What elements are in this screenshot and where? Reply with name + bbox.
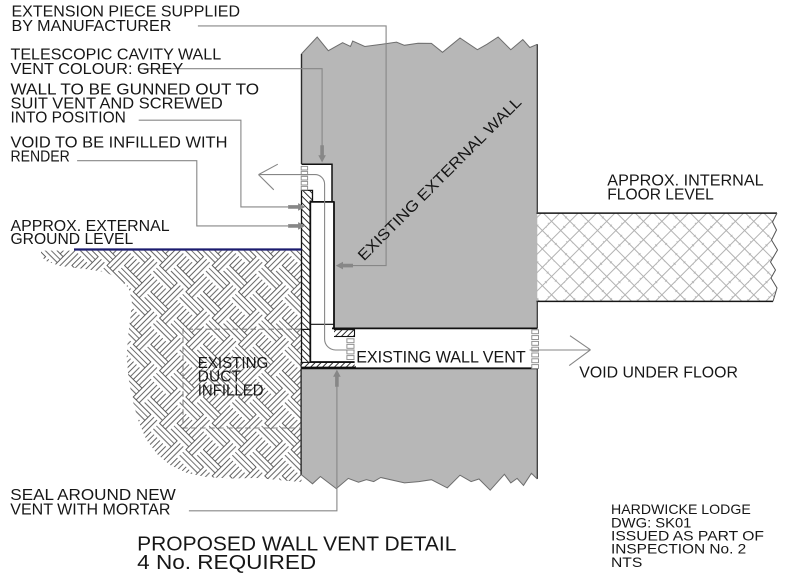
svg-text:NTS: NTS [611,555,642,570]
svg-text:GROUND LEVEL: GROUND LEVEL [11,231,134,248]
svg-text:EXISTING WALL VENT: EXISTING WALL VENT [356,348,526,367]
svg-text:INFILLED: INFILLED [198,382,264,399]
svg-text:VENT WITH MORTAR: VENT WITH MORTAR [10,502,170,519]
svg-text:VOID UNDER FLOOR: VOID UNDER FLOOR [579,365,738,382]
svg-text:VENT COLOUR: GREY: VENT COLOUR: GREY [11,61,184,78]
svg-text:4 No. REQUIRED: 4 No. REQUIRED [137,552,316,574]
svg-text:FLOOR LEVEL: FLOOR LEVEL [607,187,714,204]
svg-text:BY MANUFACTURER: BY MANUFACTURER [12,18,172,35]
svg-text:INTO POSITION: INTO POSITION [11,109,126,126]
svg-text:RENDER: RENDER [11,149,70,166]
